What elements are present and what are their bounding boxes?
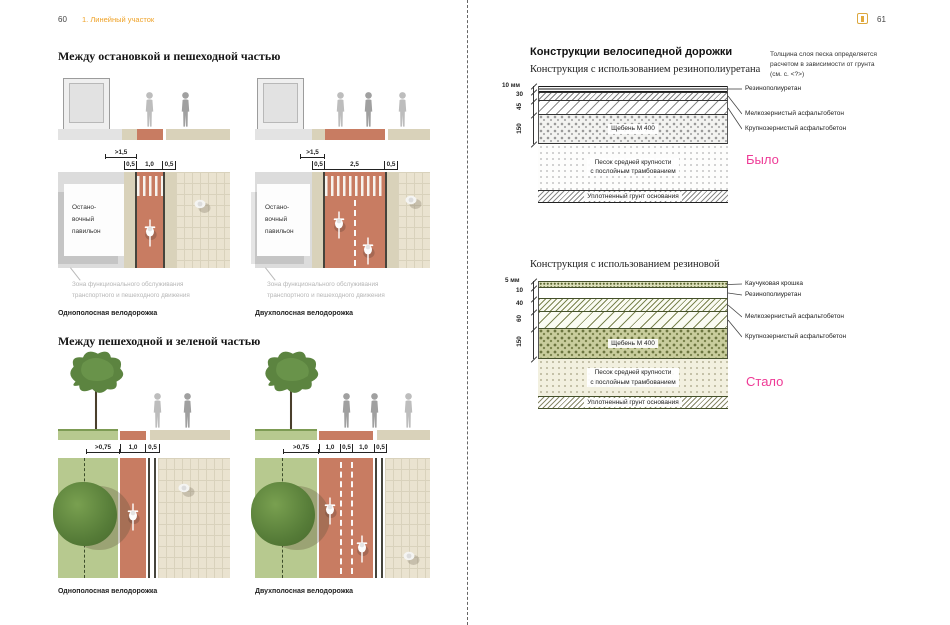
lane-divider-line: [354, 200, 356, 266]
sand-label: Песок средней крупности с послойным трам…: [587, 368, 678, 387]
dim-value: 0,5: [312, 161, 325, 169]
layer-label: Мелкозернистый асфальтобетон: [745, 110, 844, 117]
dim-line: [533, 281, 534, 359]
right-page-title: Конструкции велосипедной дорожки: [530, 46, 732, 58]
page-left: 60 1. Линейный участок Между остановкой …: [0, 0, 467, 625]
plan-buffer-right: [163, 172, 176, 268]
dim-value: 1,0: [353, 444, 375, 452]
pavilion-box: Остано- вочный павильон: [257, 184, 310, 256]
elevation-sidewalk: [150, 430, 230, 440]
elevation-buffer: [122, 129, 137, 140]
person-icon: [401, 392, 416, 430]
chapter-label: 1. Линейный участок: [82, 15, 154, 24]
tree-icon: [60, 350, 132, 432]
layer-label: Резинополиуретан: [745, 85, 801, 92]
dim-value: 0,5: [146, 444, 160, 452]
section2-title: Между пешеходной и зеленой частью: [58, 334, 260, 349]
bus-shelter-icon: [63, 78, 110, 130]
layer-rubble: Щебень М 400: [538, 329, 728, 359]
construction-diagram-1: Щебень М 400 Песок средней крупности с п…: [530, 86, 935, 216]
dim-value: 10 мм: [502, 82, 520, 89]
layer-rubble: Щебень М 400: [538, 115, 728, 144]
elevation-bike-lane: [319, 431, 373, 440]
diagram-green-single: >0,75 1,0 0,5 Однополосная велодорожка: [58, 350, 230, 600]
leader-lines: [728, 281, 742, 341]
dimension-offset: >1,5: [105, 149, 137, 158]
dim-value: 2,5: [325, 161, 385, 169]
elevation-green-strip: [255, 429, 317, 440]
layer-fine-asphalt: [538, 92, 728, 101]
plan-buffer-left: [312, 172, 325, 268]
status-before: Было: [746, 152, 779, 167]
rubble-label: Щебень М 400: [608, 339, 658, 348]
construction-diagram-2: Щебень М 400 Песок средней крупности с п…: [530, 281, 935, 421]
dim-value: 0,5: [163, 161, 176, 169]
dim-value: 30: [516, 91, 523, 98]
elevation-sidewalk: [166, 129, 230, 140]
rubble-label: Щебень М 400: [608, 124, 658, 133]
annotation-leader: [70, 267, 81, 280]
dim-value: 150: [516, 336, 523, 347]
crosswalk: [137, 176, 163, 196]
pedestrian-icon: [401, 548, 421, 568]
cyclist-icon: [125, 502, 141, 532]
plan-sidewalk: [176, 172, 230, 268]
person-icon: [178, 91, 193, 129]
diagram-stop-double: >1,5 0,5 2,5 0,5 Остано- вочный павильон…: [255, 78, 430, 323]
dimension-offset: >1,5: [300, 149, 325, 158]
book-spread: 60 1. Линейный участок Между остановкой …: [0, 0, 950, 625]
dim-value: 0,5: [341, 444, 353, 452]
diagram-caption: Однополосная велодорожка: [58, 310, 157, 317]
lane-divider-line: [351, 462, 353, 574]
person-icon: [180, 392, 195, 430]
layer-label: Крупнозернистый асфальтобетон: [745, 333, 846, 340]
layer-rubber-crumb: [538, 281, 728, 288]
cyclist-icon: [142, 218, 158, 248]
layer-base-soil: Уплотненный грунт основания: [538, 396, 728, 409]
cyclist-icon: [322, 496, 338, 526]
plan-rails: [375, 458, 383, 578]
chapter-badge-icon: [857, 13, 868, 24]
dimension-row: 1,0 0,5 1,0 0,5: [319, 444, 387, 453]
bus-shelter-icon: [257, 78, 304, 130]
layer-label: Крупнозернистый асфальтобетон: [745, 125, 846, 132]
diagram-caption: Двухполосная велодорожка: [255, 310, 353, 317]
dim-value: 5 мм: [505, 277, 520, 284]
lane-divider-line: [340, 462, 342, 574]
plan-buffer-right: [385, 172, 398, 268]
dim-value: 40: [516, 300, 523, 307]
dim-value: 45: [516, 103, 523, 110]
layer-label: Каучуковая крошка: [745, 280, 803, 287]
person-icon: [142, 91, 157, 129]
dimension-row: 0,5 1,0 0,5: [124, 161, 176, 170]
person-icon: [361, 91, 376, 129]
dim-value: 0,5: [124, 161, 137, 169]
plan-sidewalk: [398, 172, 430, 268]
dimension-offset: >0,75: [86, 444, 120, 453]
leader-lines: [728, 86, 742, 136]
diagram-stop-single: >1,5 0,5 1,0 0,5 Остано- вочный павильон…: [58, 78, 230, 323]
dim-value: 1,0: [319, 444, 341, 452]
layer-label: Мелкозернистый асфальтобетон: [745, 313, 844, 320]
section1-title: Между остановкой и пешеходной частью: [58, 49, 280, 64]
person-icon: [395, 91, 410, 129]
pedestrian-icon: [403, 192, 423, 212]
cyclist-icon: [331, 210, 347, 240]
elevation-platform: [255, 129, 312, 140]
dim-value: 0,5: [375, 444, 387, 452]
dim-value: 150: [516, 123, 523, 134]
dim-value: 1,0: [120, 444, 146, 452]
base-label: Уплотненный грунт основания: [584, 192, 682, 201]
status-after: Стало: [746, 374, 783, 389]
construction1-subtitle: Конструкция с использованием резинополиу…: [530, 64, 760, 75]
cyclist-icon: [354, 534, 370, 564]
person-icon: [333, 91, 348, 129]
person-icon: [339, 392, 354, 430]
zone-annotation: Зона функционального обслуживания трансп…: [267, 280, 385, 301]
layer-coarse-asphalt: [538, 312, 728, 329]
zone-annotation: Зона функционального обслуживания трансп…: [72, 280, 190, 301]
layer-base-soil: Уплотненный грунт основания: [538, 190, 728, 203]
page-number-left: 60: [58, 15, 67, 24]
dim-value: 60: [516, 315, 523, 322]
annotation-leader: [265, 267, 276, 280]
sand-note: Толщина слоя песка определяется расчетом…: [770, 50, 935, 81]
cyclist-icon: [360, 236, 376, 266]
pedestrian-icon: [176, 480, 196, 500]
elevation-platform: [58, 129, 122, 140]
elevation-buffer: [312, 129, 325, 140]
elevation-green-strip: [58, 429, 118, 440]
dimension-offset: >0,75: [283, 444, 319, 453]
plan-sidewalk: [158, 458, 230, 578]
tree-icon: [255, 350, 327, 432]
dim-value: 1,0: [137, 161, 163, 169]
tree-crown-icon: [251, 482, 315, 546]
plan-rails: [148, 458, 156, 578]
sand-label: Песок средней крупности с послойным трам…: [587, 158, 678, 177]
elevation-sidewalk: [388, 129, 430, 140]
tree-crown-icon: [53, 482, 117, 546]
person-icon: [367, 392, 382, 430]
elevation-bike-lane: [325, 129, 385, 140]
page-right: 61 Конструкции велосипедной дорожки Толщ…: [467, 0, 950, 625]
dim-value: 0,5: [385, 161, 398, 169]
elevation-bike-lane: [120, 431, 146, 440]
pavilion-box: Остано- вочный павильон: [64, 184, 124, 256]
dimension-row: 1,0 0,5: [120, 444, 160, 453]
elevation-bike-lane: [137, 129, 163, 140]
layer-rubber-polyurethane: [538, 288, 728, 299]
layer-coarse-asphalt: [538, 101, 728, 115]
dimension-row: 0,5 2,5 0,5: [312, 161, 398, 170]
person-icon: [150, 392, 165, 430]
dim-value: 10: [516, 287, 523, 294]
diagram-caption: Однополосная велодорожка: [58, 588, 157, 595]
plan-buffer-left: [124, 172, 137, 268]
elevation-sidewalk: [377, 430, 430, 440]
pedestrian-icon: [192, 196, 212, 216]
base-label: Уплотненный грунт основания: [584, 398, 682, 407]
diagram-caption: Двухполосная велодорожка: [255, 588, 353, 595]
layer-fine-asphalt: [538, 299, 728, 312]
layer-sand: Песок средней крупности с послойным трам…: [538, 359, 728, 396]
diagram-green-double: >0,75 1,0 0,5 1,0 0,5 Двухполосная велод…: [255, 350, 433, 600]
page-number-right: 61: [877, 15, 886, 24]
layer-label: Резинополиуретан: [745, 291, 801, 298]
crosswalk: [325, 176, 385, 196]
construction2-subtitle: Конструкция с использованием резиновой: [530, 259, 720, 270]
layer-sand: Песок средней крупности с послойным трам…: [538, 144, 728, 190]
